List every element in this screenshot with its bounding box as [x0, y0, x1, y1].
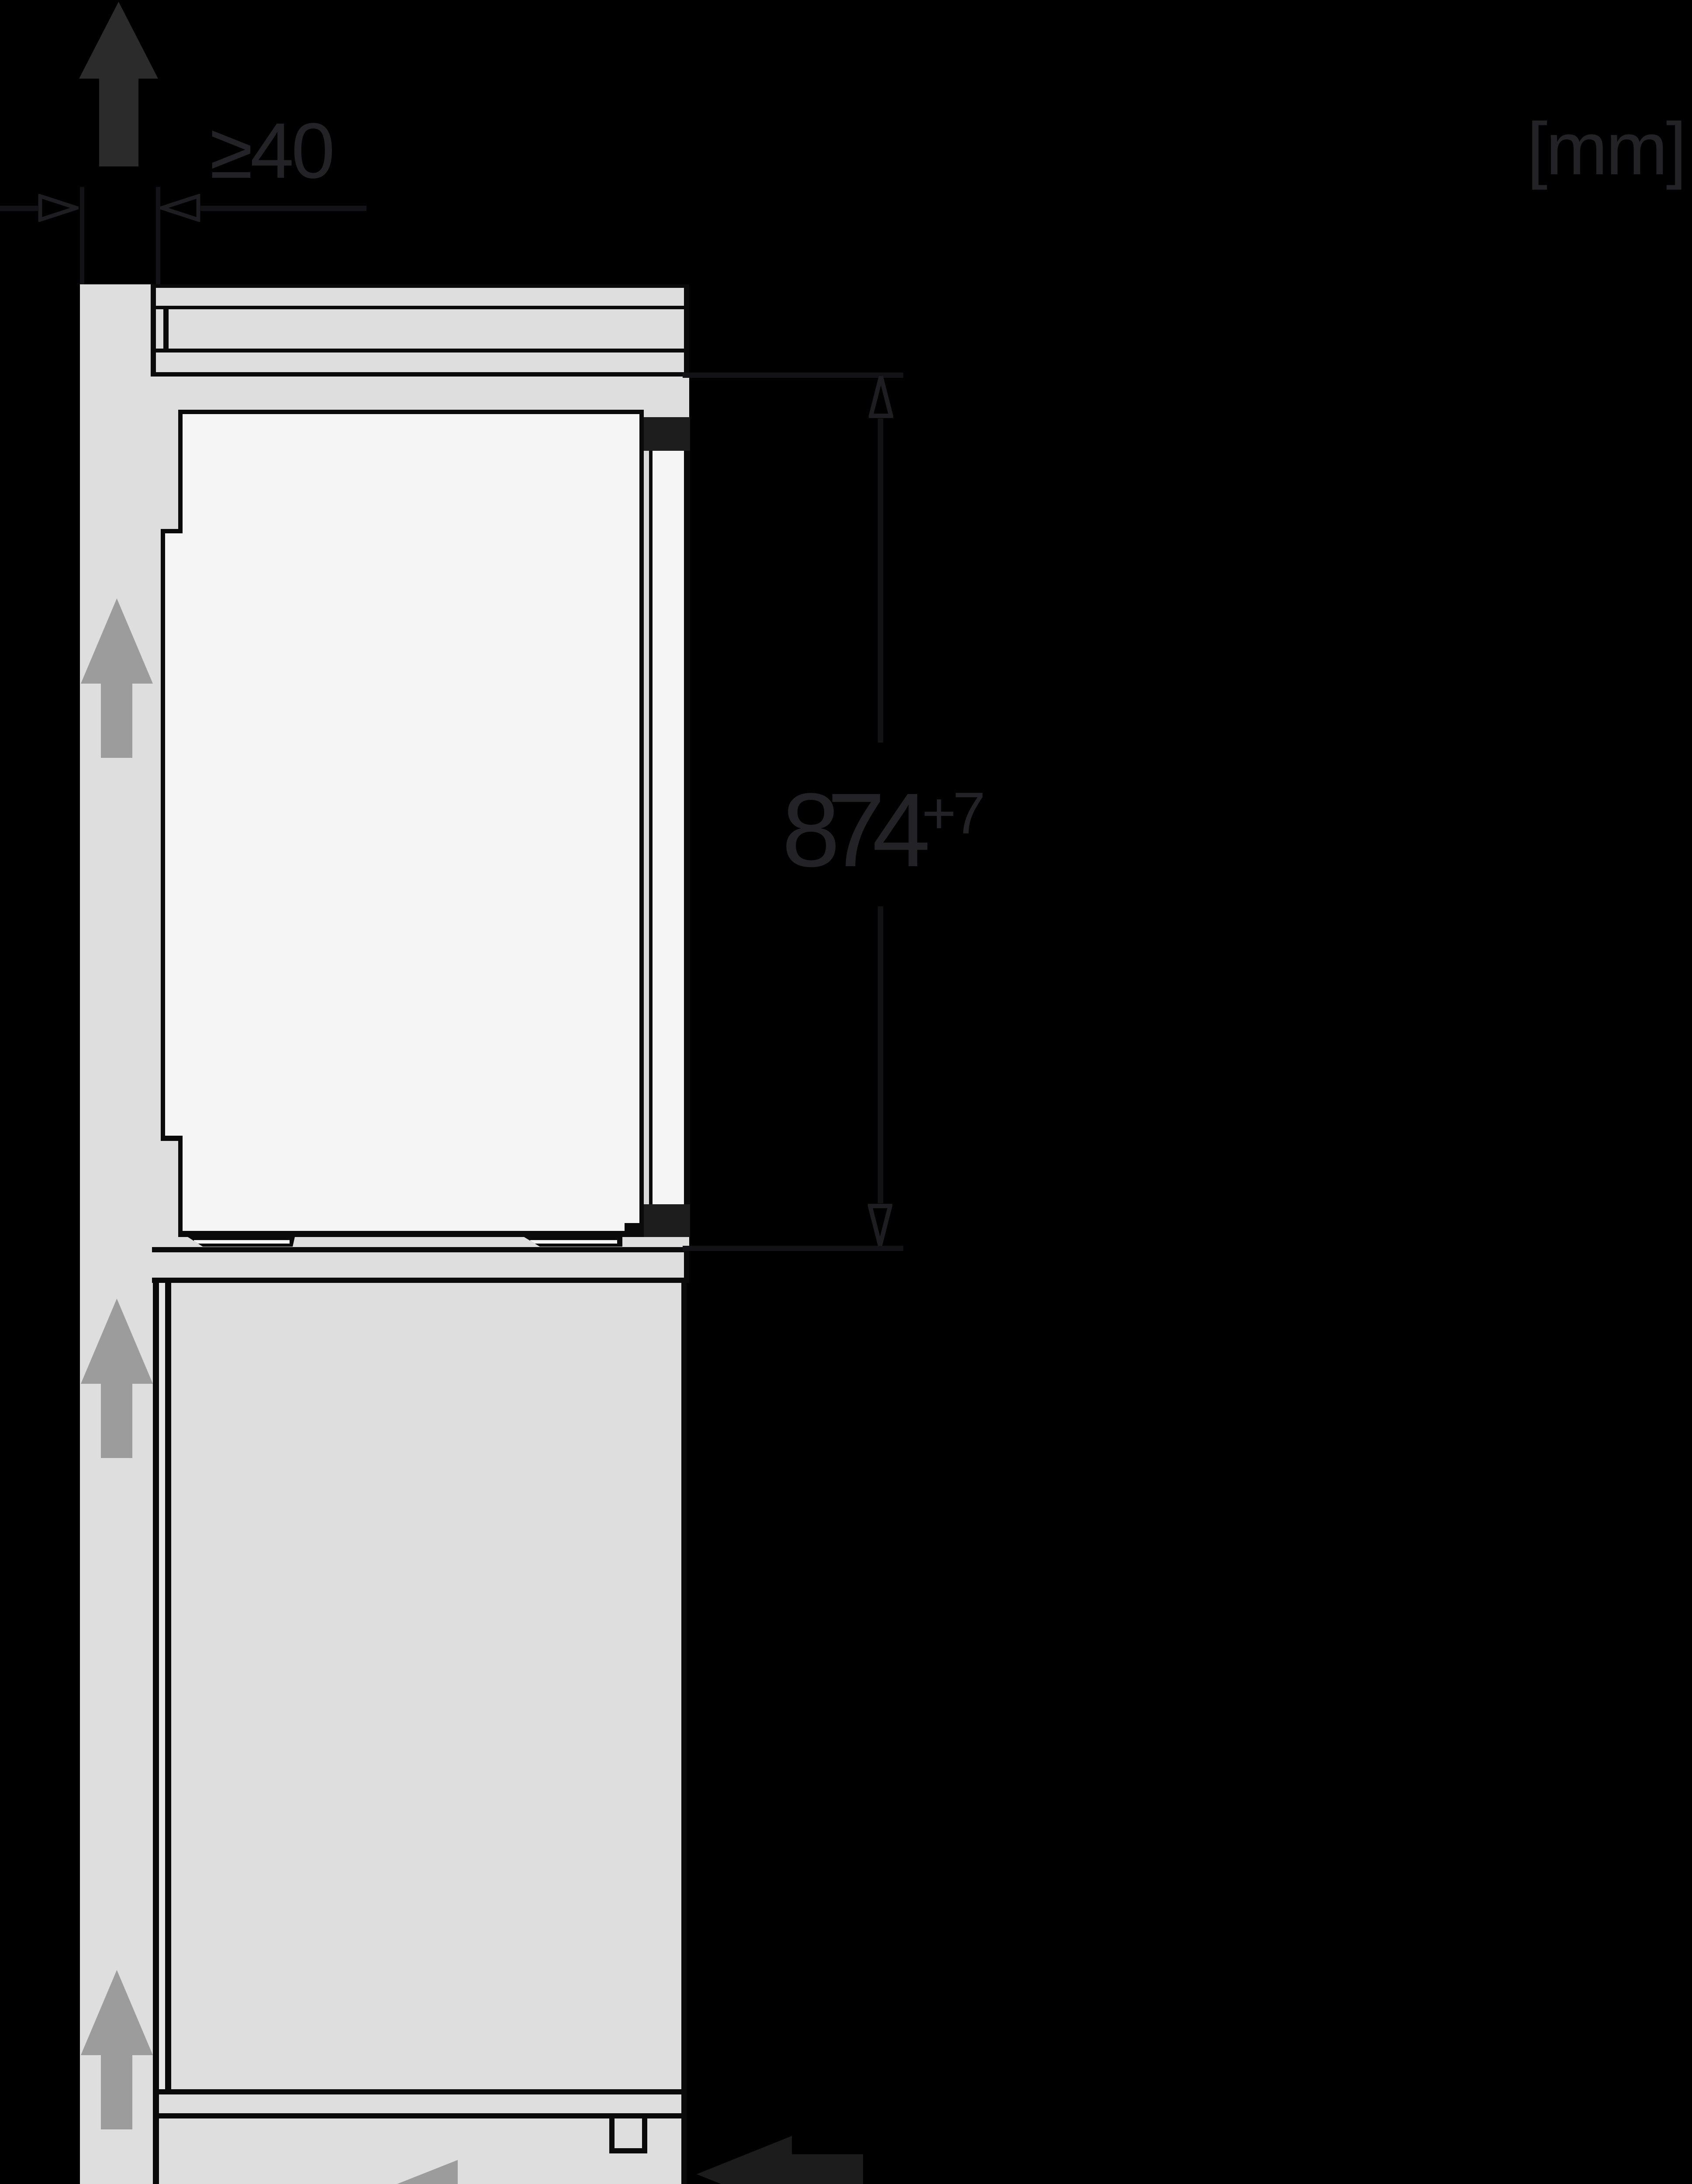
dim-arrow-down-icon [868, 1203, 892, 1248]
appliance-foot-left-face [194, 1240, 290, 1244]
hinge-block-top [644, 417, 690, 451]
door-edge-panel [653, 451, 684, 1204]
air-outlet-arrow-shaft [99, 79, 138, 166]
niche-dim-line-lower [878, 906, 883, 1203]
air-outlet-arrow-head [79, 2, 158, 79]
niche-height-value: 874 [782, 771, 917, 888]
installation-diagram: ≥40 [mm] 874+7 [0, 0, 1692, 2184]
door-outer-line [684, 451, 690, 1204]
top-panel-top-edge [156, 284, 689, 288]
top-panel-bottom-edge [151, 372, 689, 377]
top-panel-bar-2-notch [163, 309, 169, 349]
air-intake-arrow-shaft [792, 2154, 863, 2184]
niche-height-label: 874+7 [782, 778, 982, 882]
door-inner-line [649, 451, 653, 1204]
lower-box-left-edge [153, 1283, 159, 2184]
appliance-foot-right-face [530, 1240, 617, 1244]
lower-box-left-inner-line [165, 1283, 171, 2094]
top-panel-bar-2 [156, 309, 684, 349]
lower-box-base-band [159, 2094, 681, 2113]
top-panel-bar-3 [156, 352, 684, 372]
clearance-dim-line-right [200, 206, 366, 211]
clearance-ext-line-left [80, 187, 84, 284]
lower-box-right-edge [681, 1283, 687, 2184]
dim-arrow-left-icon [160, 194, 200, 222]
plinth-area [159, 2118, 681, 2184]
top-panel-joint-2 [156, 349, 684, 352]
top-panel-bar-1 [156, 288, 684, 306]
niche-dim-line-upper [878, 418, 883, 743]
dim-arrow-up-icon [869, 374, 893, 418]
door-gap-sliver [644, 451, 649, 1204]
min-clearance-label: ≥40 [210, 112, 332, 190]
unit-label: [mm] [1527, 112, 1685, 186]
wall-panel-seam [151, 284, 156, 377]
appliance-foot-right [524, 1237, 622, 1247]
lower-box-base-line [159, 2113, 681, 2118]
airflow-up-arrow-1-shaft [101, 684, 132, 758]
airflow-up-arrow-3-shaft [101, 2055, 132, 2129]
airflow-up-arrow-2-shaft [101, 1384, 132, 1458]
niche-height-tolerance: +7 [922, 780, 982, 846]
appliance-body [178, 410, 644, 1237]
left-air-duct [161, 529, 183, 1141]
lower-box-interior [171, 1283, 681, 2089]
lower-box-left-sliver [159, 1283, 165, 2089]
separator-shelf [152, 1247, 689, 1283]
appliance-foot-left [188, 1237, 295, 1247]
top-panel-joint-1 [156, 306, 684, 309]
clearance-dim-line-left [0, 206, 38, 211]
min-clearance-value: ≥40 [210, 107, 332, 195]
air-intake-arrow-head [697, 2136, 792, 2184]
top-panel-right-cap [684, 284, 689, 377]
unit-value: [mm] [1527, 107, 1685, 190]
lower-box-floor-line [159, 2089, 681, 2094]
dim-arrow-right-icon [38, 194, 79, 222]
vent-slot-1-cap [609, 2148, 647, 2153]
appliance-corner-patch [625, 1223, 644, 1237]
hinge-block-bottom [644, 1204, 690, 1237]
